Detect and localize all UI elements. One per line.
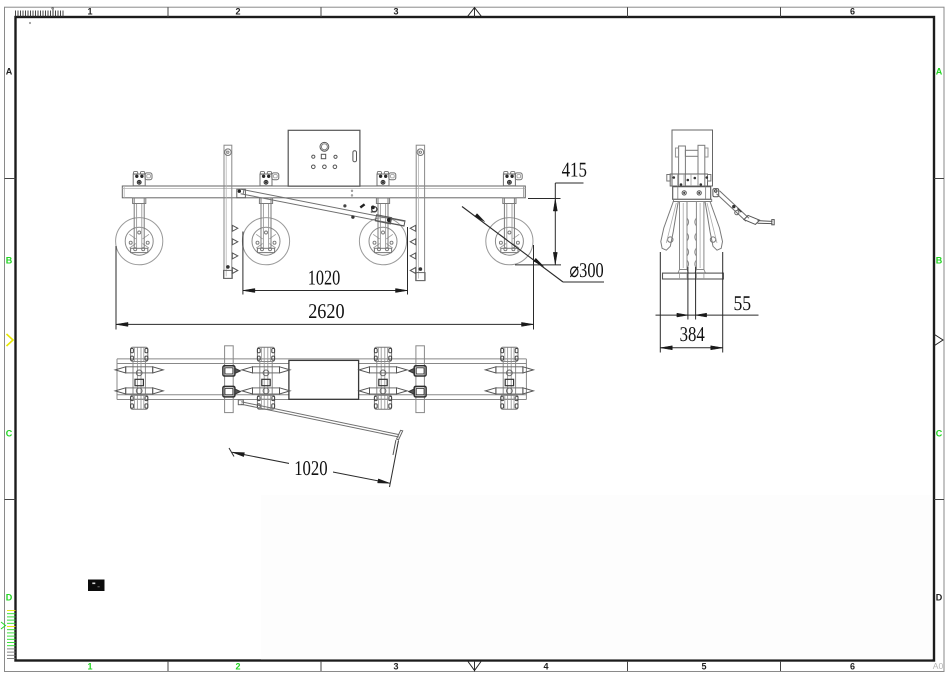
svg-text:⌀300: ⌀300 [569, 258, 603, 282]
svg-text:2620: 2620 [308, 299, 344, 323]
svg-text:B: B [936, 256, 943, 266]
svg-text:B: B [6, 256, 13, 266]
svg-text:A: A [936, 67, 943, 77]
svg-text:4: 4 [543, 662, 548, 672]
svg-text:55: 55 [733, 291, 751, 315]
svg-text:1: 1 [87, 662, 92, 672]
svg-text:2: 2 [235, 662, 240, 672]
svg-text:A0: A0 [933, 661, 944, 671]
svg-text:D: D [936, 593, 943, 603]
svg-text:5: 5 [701, 662, 706, 672]
svg-text:6: 6 [850, 7, 855, 17]
svg-text:C: C [936, 429, 943, 439]
svg-text:3: 3 [393, 7, 398, 17]
svg-text:6: 6 [850, 662, 855, 672]
svg-text:1020: 1020 [294, 456, 327, 480]
svg-text:384: 384 [680, 322, 706, 346]
svg-text:D: D [6, 593, 13, 603]
svg-text:1: 1 [87, 7, 92, 17]
svg-text:1020: 1020 [308, 265, 341, 289]
svg-text:2: 2 [235, 7, 240, 17]
svg-text:C: C [6, 429, 13, 439]
svg-text:A: A [6, 67, 13, 77]
svg-text:3: 3 [393, 662, 398, 672]
svg-text:415: 415 [562, 157, 587, 181]
